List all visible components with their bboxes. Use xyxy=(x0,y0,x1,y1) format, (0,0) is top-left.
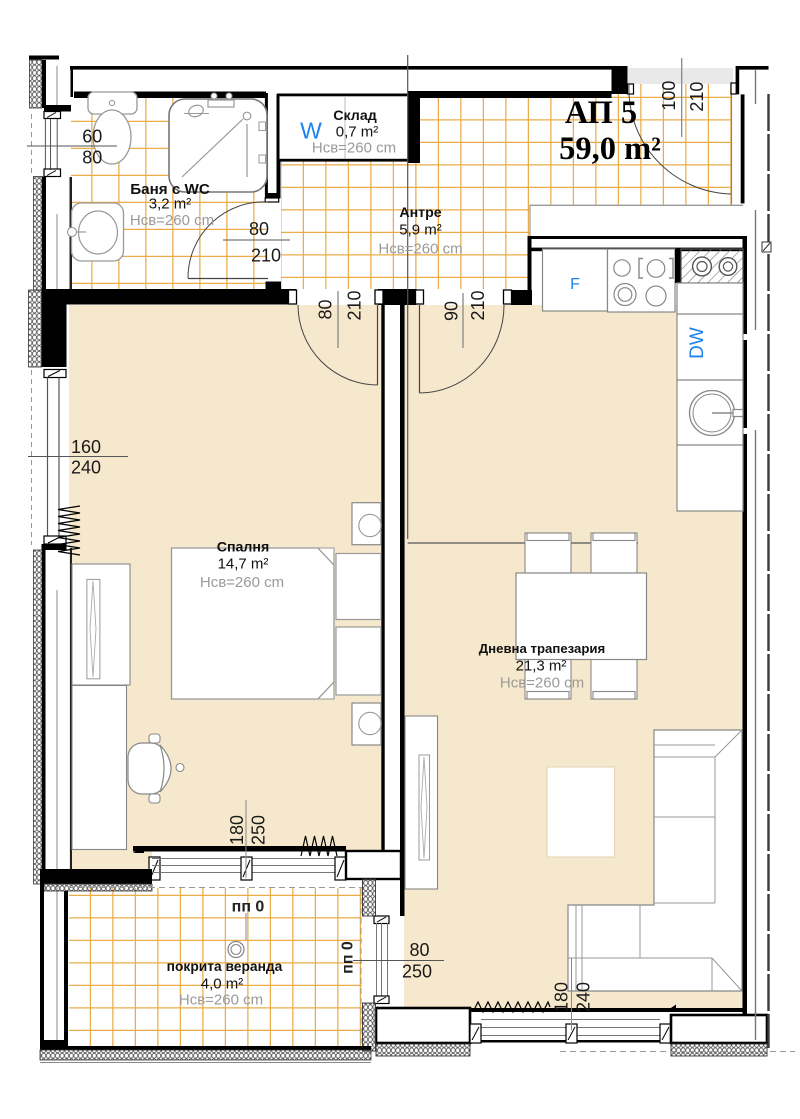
svg-text:210: 210 xyxy=(251,246,281,266)
svg-text:Склад: Склад xyxy=(333,108,376,124)
svg-text:пп 0: пп 0 xyxy=(340,941,357,974)
svg-text:пп 0: пп 0 xyxy=(232,899,265,916)
svg-text:250: 250 xyxy=(249,815,269,845)
svg-text:Антре: Антре xyxy=(399,205,441,221)
svg-text:3,2 m²: 3,2 m² xyxy=(149,196,192,213)
svg-text:Нсв=260 cm: Нсв=260 cm xyxy=(312,140,396,157)
svg-text:АП 5: АП 5 xyxy=(565,95,637,131)
svg-text:180: 180 xyxy=(227,815,247,845)
svg-text:240: 240 xyxy=(574,982,594,1012)
svg-text:160: 160 xyxy=(71,437,101,457)
svg-text:180: 180 xyxy=(552,982,572,1012)
svg-text:80: 80 xyxy=(82,148,102,168)
svg-text:Нсв=260 cm: Нсв=260 cm xyxy=(179,992,263,1009)
svg-text:80: 80 xyxy=(316,299,336,319)
svg-text:80: 80 xyxy=(249,219,269,239)
svg-text:W: W xyxy=(300,118,322,144)
svg-text:60: 60 xyxy=(82,127,102,147)
svg-text:250: 250 xyxy=(402,962,432,982)
svg-text:4,0 m²: 4,0 m² xyxy=(201,976,244,993)
svg-text:21,3 m²: 21,3 m² xyxy=(516,658,567,675)
svg-text:210: 210 xyxy=(345,290,365,320)
svg-text:Нсв=260 cm: Нсв=260 cm xyxy=(378,241,462,258)
svg-text:покрита веранда: покрита веранда xyxy=(167,959,283,974)
svg-text:Спалня: Спалня xyxy=(217,540,270,556)
svg-text:210: 210 xyxy=(687,82,707,112)
svg-text:14,7 m²: 14,7 m² xyxy=(218,556,269,573)
svg-text:DW: DW xyxy=(687,327,708,359)
svg-text:100: 100 xyxy=(659,81,679,111)
svg-text:59,0 m²: 59,0 m² xyxy=(559,131,661,167)
svg-text:5,9 m²: 5,9 m² xyxy=(399,222,442,239)
svg-text:Дневна трапезария: Дневна трапезария xyxy=(479,641,606,656)
svg-text:Нсв=260 cm: Нсв=260 cm xyxy=(130,212,214,229)
svg-text:210: 210 xyxy=(468,290,488,320)
svg-text:F: F xyxy=(570,276,580,293)
svg-text:Нсв=260 cm: Нсв=260 cm xyxy=(500,675,584,692)
svg-text:90: 90 xyxy=(442,301,462,321)
svg-text:0,7 m²: 0,7 m² xyxy=(336,124,379,141)
svg-text:Нсв=260 cm: Нсв=260 cm xyxy=(200,574,284,591)
svg-text:80: 80 xyxy=(409,940,429,960)
svg-text:240: 240 xyxy=(71,458,101,478)
